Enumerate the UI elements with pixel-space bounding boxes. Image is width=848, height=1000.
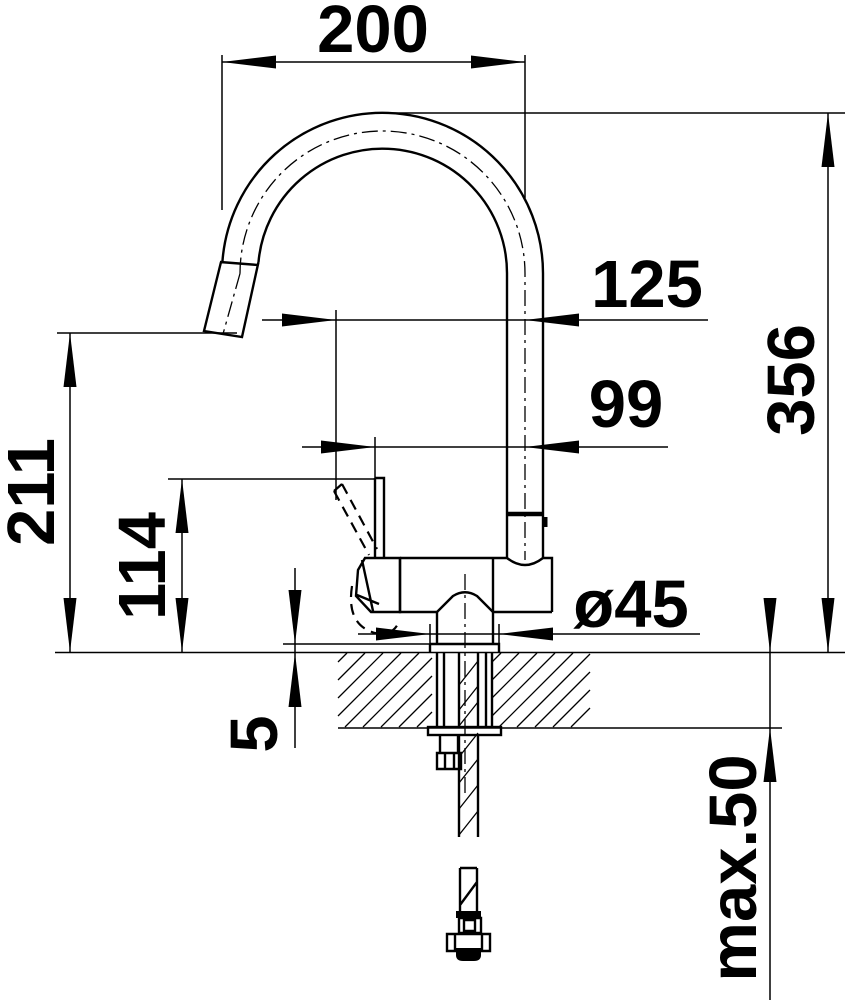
hose-fitting-block — [459, 918, 481, 933]
handle-knob — [356, 558, 400, 612]
countertop-hatch-right — [492, 653, 590, 727]
dim-5-arrow-top — [289, 590, 302, 644]
lever-tilted-dashed — [334, 484, 377, 555]
spout-outer-arc — [222, 113, 543, 558]
hose-fitting — [447, 868, 490, 961]
dimension-99: 99 — [302, 367, 668, 478]
faucet-technical-drawing: 200 125 99 356 211 114 ø45 — [0, 0, 848, 1000]
faucet-body — [204, 113, 552, 798]
dim-label-dia45: ø45 — [573, 567, 688, 642]
dim-200-lines — [222, 55, 525, 210]
dimension-dia45: ø45 — [358, 567, 700, 650]
dim-label-max50: max.50 — [696, 754, 771, 981]
dim-99-arrow-left — [321, 441, 375, 454]
dim-label-125: 125 — [591, 247, 703, 322]
dim-5-arrow-bottom — [289, 653, 302, 707]
dim-max50-arrow-top — [764, 598, 777, 652]
dim-99-arrow-right — [525, 441, 579, 454]
dim-211-arrow-top — [64, 333, 77, 387]
dim-label-5: 5 — [217, 715, 292, 752]
hose-fitting-rod — [460, 868, 477, 911]
dim-200-arrow-left — [222, 56, 276, 69]
hose-fitting-cap — [456, 948, 481, 961]
spout-inner-arc — [259, 149, 508, 558]
clamp-hex-nut — [437, 753, 461, 769]
lever-upright — [375, 478, 384, 558]
clamp-nipple — [440, 735, 458, 753]
riser-joint-nub — [543, 517, 548, 527]
dimension-5: 5 — [217, 568, 430, 753]
handle-knob-ghost — [351, 586, 399, 634]
countertop-section — [55, 653, 845, 729]
dim-label-99: 99 — [589, 367, 664, 442]
dim-dia45-arrow-left — [376, 628, 430, 641]
dim-125-arrow-right — [525, 314, 579, 327]
dimension-max50: max.50 — [696, 598, 777, 1000]
pullout-spray-head — [204, 262, 259, 337]
body-block — [400, 558, 552, 612]
drawing-canvas: 200 125 99 356 211 114 ø45 — [0, 0, 848, 1000]
dim-356-arrow-bottom — [822, 598, 835, 652]
dim-114-lines — [168, 479, 374, 652]
thread-marks — [459, 661, 478, 835]
dim-label-356: 356 — [754, 324, 829, 436]
dim-99-lines — [302, 437, 668, 478]
dim-200-arrow-right — [471, 56, 525, 69]
dim-label-200: 200 — [317, 0, 429, 67]
dim-dia45-arrow-right — [499, 628, 553, 641]
dimension-114: 114 — [105, 479, 374, 652]
dim-356-arrow-top — [822, 113, 835, 167]
dimension-200: 200 — [222, 0, 525, 210]
dim-125-arrow-left — [282, 314, 336, 327]
dim-211-arrow-bottom — [64, 598, 77, 652]
countertop-hatch-left — [338, 653, 432, 727]
dim-label-211: 211 — [0, 438, 69, 546]
dim-label-114: 114 — [105, 512, 180, 620]
